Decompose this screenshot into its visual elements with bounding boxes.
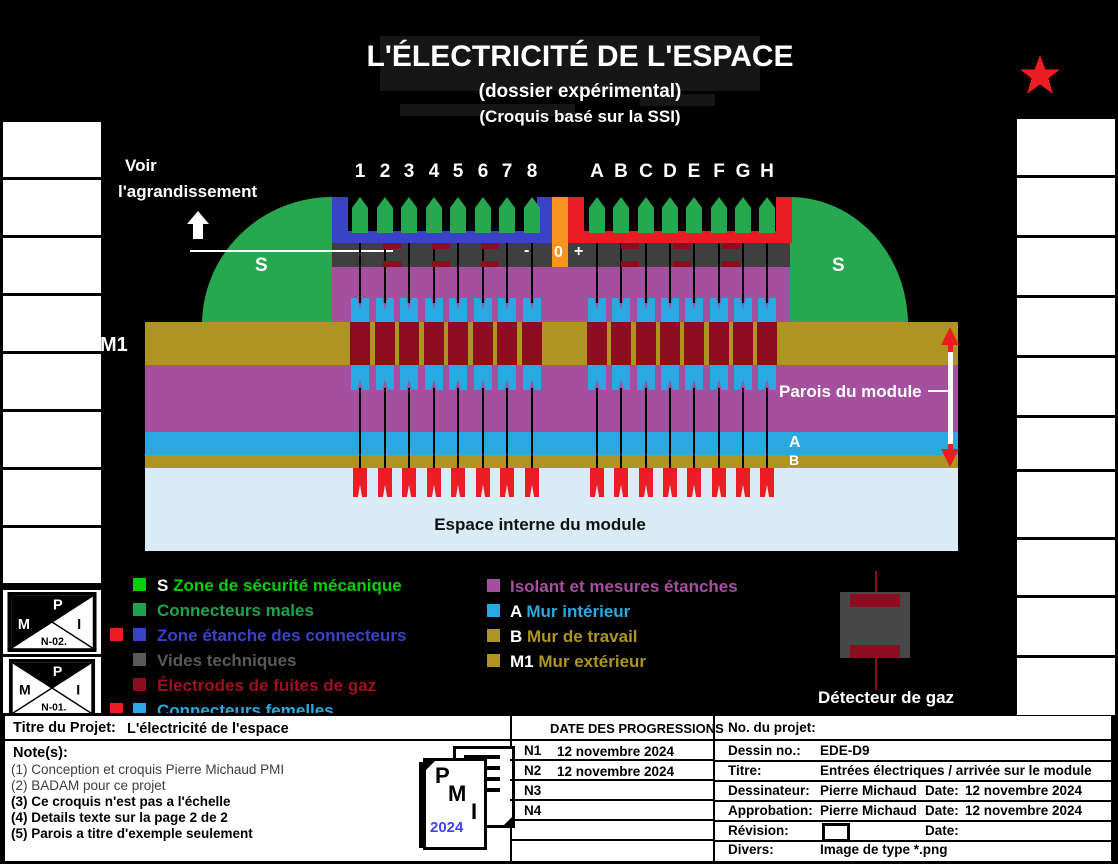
grid-cell: P M I N-01. [3, 657, 101, 718]
pin-label: 7 [495, 161, 519, 183]
divider [510, 739, 715, 741]
male-connector-pin [499, 197, 515, 233]
logo-number: N-02. [41, 636, 67, 648]
male-connector-pin [759, 197, 775, 233]
male-connector-pin [638, 197, 654, 233]
work-wall-band-b [145, 455, 958, 468]
divider [510, 759, 715, 761]
legend-item: Connecteurs males [157, 601, 314, 621]
project-title-value: L'électricité de l'espace [127, 721, 289, 737]
grid-cell [3, 238, 101, 293]
wire-lower [645, 388, 647, 470]
divider [510, 839, 715, 841]
approval-date-label: Date: [925, 803, 959, 818]
gas-leak-electrode [722, 243, 740, 249]
legend-bullet [133, 628, 146, 641]
wire-lower [620, 388, 622, 470]
pin-label: D [658, 161, 682, 183]
legend-label: Mur de travail [527, 627, 638, 646]
grid-cell [1017, 540, 1115, 595]
pin-label: B [609, 161, 633, 183]
gas-detector-electrode-bottom [850, 645, 900, 658]
wire-lower [718, 388, 720, 470]
male-connector-pin [662, 197, 678, 233]
walls-arrow-shaft [948, 346, 953, 450]
up-arrow-icon [187, 211, 209, 224]
legend-label: Mur extérieur [538, 652, 646, 671]
title-block: Titre du Projet: L'électricité de l'espa… [3, 713, 1114, 864]
grid-cell [1017, 119, 1115, 175]
note-line: (1) Conception et croquis Pierre Michaud… [11, 762, 284, 777]
gas-leak-electrode [481, 261, 499, 267]
wire-lower [693, 388, 695, 470]
pmi-letter-i: I [471, 799, 477, 825]
pin-label: C [634, 161, 658, 183]
pmi-logo-n02: P M I N-02. [6, 592, 98, 652]
feedthrough-electrode [473, 322, 493, 365]
male-connector-pin [377, 197, 393, 233]
a-wall-label: A [789, 434, 801, 452]
legend-bullet [487, 604, 500, 617]
progress-n: N1 [524, 743, 541, 758]
legend-bullet [487, 629, 500, 642]
wire-lower [457, 388, 459, 470]
enlargement-pointer-line [190, 250, 393, 252]
male-connector-pin [613, 197, 629, 233]
progress-n: N3 [524, 783, 541, 798]
legend-prefix: B [510, 627, 527, 646]
gas-leak-electrode [673, 261, 691, 267]
grid-cell [3, 180, 101, 235]
divider [510, 819, 715, 821]
male-connector-pin [401, 197, 417, 233]
legend-bullet [133, 653, 146, 666]
feedthrough-electrode [522, 322, 542, 365]
wire-lower [408, 388, 410, 470]
grid-cell [1017, 472, 1115, 537]
legend-label: Mur intérieur [526, 602, 630, 621]
wire-upper [433, 243, 435, 303]
feedthrough-electrode [636, 322, 656, 365]
pin-label: H [755, 161, 779, 183]
gas-leak-electrode [722, 261, 740, 267]
pmi-logo-n01: P M I N-01. [6, 659, 98, 717]
misc-label: Divers: [728, 842, 774, 857]
grid-cell [3, 122, 101, 177]
revision-date-label: Date: [925, 823, 959, 838]
walls-arrow-head-down [941, 449, 959, 467]
legend-bullet [487, 654, 500, 667]
gas-leak-electrode [432, 261, 450, 267]
wire-upper [482, 243, 484, 303]
logo-letter-i: I [76, 682, 80, 698]
legend-bullet [133, 578, 146, 591]
feedthrough-electrode [611, 322, 631, 365]
male-connector-pin [352, 197, 368, 233]
grid-cell [1017, 238, 1115, 295]
inner-space-label: Espace interne du module [430, 515, 650, 535]
grid-cell [1017, 178, 1115, 235]
wire-upper [384, 243, 386, 303]
male-connector-pin [686, 197, 702, 233]
project-title-label: Titre du Projet: [13, 720, 116, 736]
wire-lower [482, 388, 484, 470]
gas-leak-electrode [621, 261, 639, 267]
legend-item: Zone étanche des connecteurs [157, 626, 406, 646]
male-connector-pin [450, 197, 466, 233]
progress-date: 12 novembre 2024 [557, 764, 674, 779]
approval-value: Pierre Michaud [820, 803, 917, 818]
wire-upper [766, 243, 768, 303]
legend-item: B Mur de travail [510, 627, 638, 647]
note-line: (4) Details texte sur la page 2 de 2 [11, 810, 228, 825]
divider [510, 799, 715, 801]
drafter-date-label: Date: [925, 783, 959, 798]
logo-letter-p: P [53, 597, 63, 613]
drawing-no-value: EDE-D9 [820, 743, 870, 758]
pin-label: 3 [397, 161, 421, 183]
grid-cell [1017, 658, 1115, 715]
revision-checkbox [822, 823, 850, 842]
m1-wall-label: M1 [100, 334, 128, 357]
sheet-title-label: Titre: [728, 763, 762, 778]
progress-n: N4 [524, 803, 541, 818]
pin-label: 2 [373, 161, 397, 183]
drawing-no-label: Dessin no.: [728, 743, 801, 758]
logo-letter-m: M [19, 682, 31, 698]
wire-upper [457, 243, 459, 303]
revision-label: Révision: [728, 823, 789, 838]
wire-upper [669, 243, 671, 303]
misc-value: Image de type *.png [820, 842, 948, 857]
pin-label: F [707, 161, 731, 183]
logo-letter-i: I [77, 617, 81, 633]
gas-detector-electrode-top [850, 594, 900, 607]
wire-upper [408, 243, 410, 303]
plus-sign: + [574, 243, 583, 261]
feedthrough-electrode [733, 322, 753, 365]
wire-upper [596, 243, 598, 303]
up-arrow-stem [193, 224, 203, 239]
see-enlargement-line1: Voir [125, 156, 157, 176]
grid-cell [3, 354, 101, 409]
feedthrough-electrode [587, 322, 607, 365]
drawing-sheet: L'ÉLECTRICITÉ DE L'ESPACE (dossier expér… [0, 0, 1118, 864]
gas-leak-electrode [673, 243, 691, 249]
wire-upper [359, 243, 361, 303]
wire-upper [620, 243, 622, 303]
pin-label: 6 [471, 161, 495, 183]
legend-label: Électrodes de fuites de gaz [157, 676, 376, 695]
note-line: (2) BADAM pour ce projet [11, 778, 166, 793]
legend-item: Vides techniques [157, 651, 297, 671]
b-wall-label: B [789, 452, 799, 468]
legend-label: Vides techniques [157, 651, 297, 670]
project-no-label: No. du projet: [728, 720, 816, 735]
legend-item: A Mur intérieur [510, 602, 630, 622]
feedthrough-electrode [399, 322, 419, 365]
drafter-value: Pierre Michaud [820, 783, 917, 798]
feedthrough-electrode [424, 322, 444, 365]
male-connector-pin [426, 197, 442, 233]
wire-lower [433, 388, 435, 470]
approval-label: Approbation: [728, 803, 813, 818]
wire-lower [596, 388, 598, 470]
approval-date-value: 12 novembre 2024 [965, 803, 1082, 818]
gas-detector-label: Détecteur de gaz [818, 688, 954, 708]
wire-lower [742, 388, 744, 470]
divider [510, 779, 715, 781]
grid-cell [3, 470, 101, 525]
pmi-year: 2024 [430, 819, 463, 836]
legend-item: S Zone de sécurité mécanique [157, 576, 402, 596]
wire-upper [742, 243, 744, 303]
pin-label: E [682, 161, 706, 183]
wire-lower [531, 388, 533, 470]
legend-prefix: M1 [510, 652, 538, 671]
gas-leak-electrode [383, 243, 401, 249]
legend-bullet [133, 603, 146, 616]
see-enlargement-line2: l'agrandissement [118, 182, 257, 202]
grid-cell [3, 296, 101, 351]
inner-wall-band-a [145, 432, 958, 455]
pin-label: G [731, 161, 755, 183]
grid-cell [1017, 598, 1115, 655]
legend-extra-red-bullet [110, 628, 123, 641]
feedthrough-electrode [709, 322, 729, 365]
pin-label: 8 [520, 161, 544, 183]
wire-lower [506, 388, 508, 470]
feedthrough-electrode [375, 322, 395, 365]
logo-letter-m: M [18, 617, 30, 633]
wire-lower [359, 388, 361, 470]
male-connector-pin [589, 197, 605, 233]
progress-header: DATE DES PROGRESSIONS [550, 721, 724, 736]
grid-cell [3, 412, 101, 467]
legend-bullet [133, 678, 146, 691]
notes-label: Note(s): [13, 745, 68, 761]
wire-lower [384, 388, 386, 470]
grid-cell [3, 528, 101, 583]
legend-prefix: A [510, 602, 526, 621]
feedthrough-electrode [660, 322, 680, 365]
walls-arrow-head-up [941, 327, 959, 345]
s-zone-label-right: S [832, 255, 845, 277]
divider [5, 739, 510, 741]
sheet-title-value: Entrées électriques / arrivée sur le mod… [820, 763, 1092, 778]
wire-lower [669, 388, 671, 470]
feedthrough-electrode [684, 322, 704, 365]
walls-pointer-line [928, 390, 948, 392]
pin-label: 4 [422, 161, 446, 183]
gas-leak-electrode [432, 243, 450, 249]
wire-upper [531, 243, 533, 303]
legend-prefix: S [157, 576, 173, 595]
legend-label: Connecteurs males [157, 601, 314, 620]
drafter-label: Dessinateur: [728, 783, 810, 798]
feedthrough-electrode [497, 322, 517, 365]
wire-upper [718, 243, 720, 303]
gas-detector-lead-bottom [875, 658, 877, 690]
gas-leak-electrode [621, 243, 639, 249]
wire-upper [645, 243, 647, 303]
safety-zone-right [790, 197, 908, 325]
feedthrough-electrode [448, 322, 468, 365]
wire-upper [693, 243, 695, 303]
legend-label: Zone étanche des connecteurs [157, 626, 406, 645]
grid-cell [1017, 358, 1115, 415]
legend-label: Isolant et mesures étanches [510, 577, 738, 596]
note-line: (5) Parois a titre d'exemple seulement [11, 826, 253, 841]
progress-date: 12 novembre 2024 [557, 744, 674, 759]
wire-upper [506, 243, 508, 303]
grid-cell [1017, 418, 1115, 469]
logo-number: N-01. [41, 702, 66, 713]
male-connector-pin [475, 197, 491, 233]
legend-label: Zone de sécurité mécanique [173, 576, 402, 595]
pmi-doc-logo-front-page: P M I 2024 [423, 758, 487, 850]
zero-sign: 0 [554, 244, 563, 262]
minus-sign: - [524, 242, 529, 260]
feedthrough-electrode [350, 322, 370, 365]
pmi-letter-m: M [448, 781, 466, 807]
wire-lower [766, 388, 768, 470]
legend-item: M1 Mur extérieur [510, 652, 646, 672]
drafter-date-value: 12 novembre 2024 [965, 783, 1082, 798]
legend-bullet [487, 579, 500, 592]
s-zone-label-left: S [255, 255, 268, 277]
male-connector-pin [711, 197, 727, 233]
pin-label: 1 [348, 161, 372, 183]
module-inner-space [145, 468, 958, 551]
gas-leak-electrode [383, 261, 401, 267]
grid-cell [1017, 298, 1115, 355]
legend-item: Isolant et mesures étanches [510, 577, 738, 597]
outer-wall-band-m1 [145, 322, 958, 365]
progress-n: N2 [524, 763, 541, 778]
male-connector-pin [735, 197, 751, 233]
pin-label: A [585, 161, 609, 183]
pin-label: 5 [446, 161, 470, 183]
gas-detector-lead-top [875, 571, 877, 592]
module-walls-label: Parois du module [779, 382, 922, 402]
feedthrough-electrode [757, 322, 777, 365]
logo-letter-p: P [53, 663, 62, 679]
gas-leak-electrode [481, 243, 499, 249]
legend-item: Électrodes de fuites de gaz [157, 676, 376, 696]
grid-cell: P M I N-02. [3, 590, 101, 654]
note-line: (3) Ce croquis n'est pas a l'échelle [11, 794, 231, 809]
